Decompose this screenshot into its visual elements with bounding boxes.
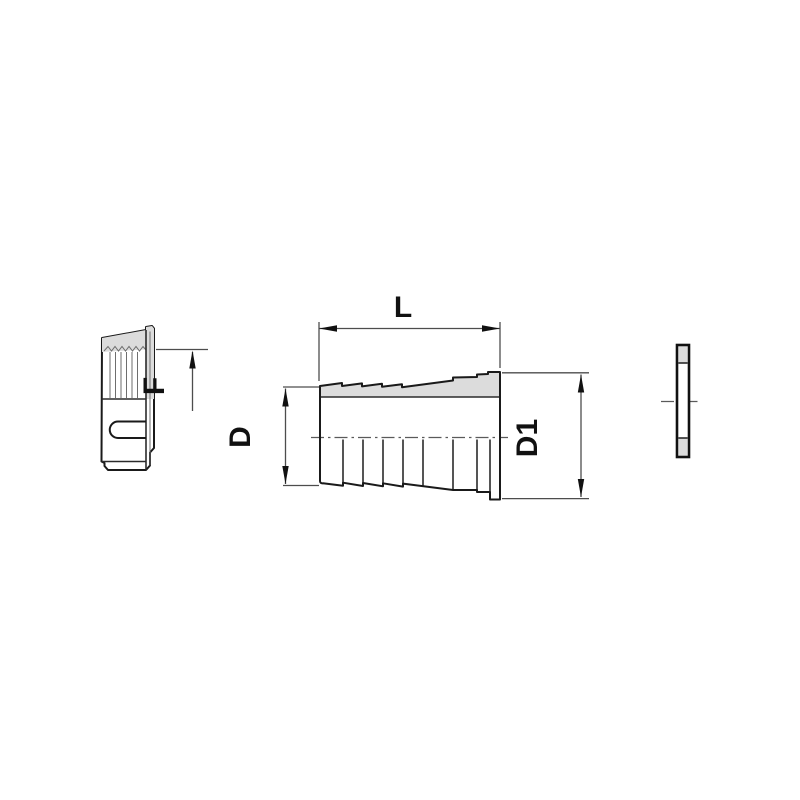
dim-d1-arrowhead-down <box>578 479 584 497</box>
hose-fitting-drawing: F L D D1 <box>0 0 800 800</box>
dim-f-arrowhead-up <box>189 351 195 369</box>
technical-drawing-canvas: F L D D1 <box>0 0 800 800</box>
washer-section-top <box>679 347 687 364</box>
dim-l-arrowhead-right <box>482 325 500 331</box>
dim-d-arrowhead-up <box>282 389 288 407</box>
nut-view <box>102 326 155 470</box>
dim-l-group: L <box>319 291 500 381</box>
washer-section-bottom <box>679 438 687 456</box>
fitting-view <box>311 372 508 500</box>
dim-d-group: D <box>224 387 319 486</box>
dim-d1-group: D1 <box>502 373 589 499</box>
dim-l-arrowhead-left <box>319 325 337 331</box>
dim-d-arrowhead-down <box>282 466 288 484</box>
dim-l-label: L <box>394 291 412 324</box>
dim-d-label: D <box>224 426 257 448</box>
washer-view <box>661 345 700 457</box>
dim-d1-label: D1 <box>511 419 544 457</box>
dim-d1-arrowhead-up <box>578 375 584 393</box>
dim-f-label: F <box>138 377 171 395</box>
